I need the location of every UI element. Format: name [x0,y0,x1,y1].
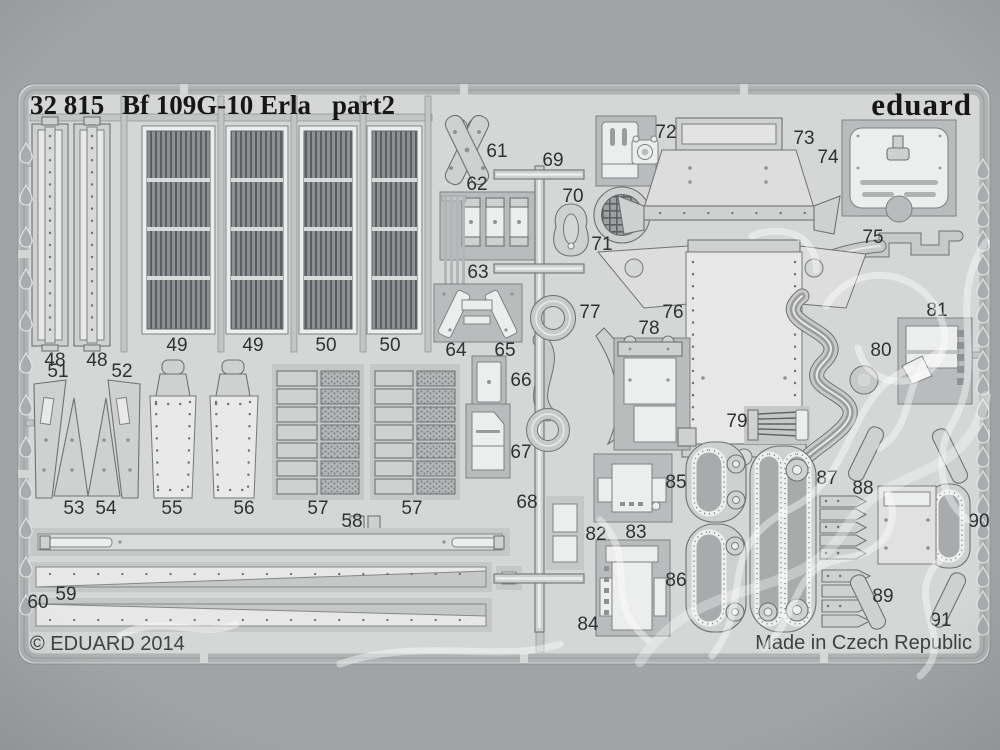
part-label-74: 74 [817,147,839,168]
part-label-49-b: 49 [242,335,263,356]
part-74-panel [842,120,956,222]
part-label-60: 60 [27,592,48,613]
part-83 [594,454,672,522]
part-64-65-brackets [434,284,522,342]
part-label-89: 89 [872,586,893,607]
part-58-60-strips [30,516,522,632]
part-85-oval [686,442,746,522]
part-label-66: 66 [510,370,531,391]
part-label-70: 70 [562,186,583,207]
part-label-50-b: 50 [379,335,400,356]
photoetch-fret-photo: 32 815 Bf 109G-10 Erla part2 eduard 48 4… [0,0,1000,750]
part-label-77: 77 [579,302,600,323]
part-79-harness [744,406,810,444]
part-62-latches [440,192,536,260]
part-label-53: 53 [63,498,84,519]
part-87-double-track [750,446,816,632]
part-66 [472,356,506,408]
part-label-86: 86 [665,570,686,591]
fret-scene: 32 815 Bf 109G-10 Erla part2 eduard 48 4… [0,0,1000,750]
brand-logo: eduard [871,87,972,122]
part-suffix: part2 [332,90,395,120]
part-label-58: 58 [341,511,362,532]
part-label-75: 75 [862,227,883,248]
part-label-55: 55 [161,498,182,519]
part-label-50-a: 50 [315,335,336,356]
part-label-54: 54 [95,498,117,519]
part-label-84: 84 [577,614,599,635]
part-label-56: 56 [233,498,254,519]
part-78-bracket [614,336,696,450]
part-label-57-b: 57 [401,498,422,519]
part-label-49-a: 49 [166,335,187,356]
part-label-73: 73 [793,128,814,149]
part-label-79: 79 [726,411,747,432]
part-label-63: 63 [467,262,488,283]
part-label-78: 78 [638,318,659,339]
catalog-number: 32 815 [30,90,104,120]
part-label-85: 85 [665,472,686,493]
part-70-ring [554,204,589,256]
part-label-52: 52 [111,361,132,382]
part-label-61: 61 [486,141,507,162]
part-49-50-grilles [142,126,422,334]
part-label-76: 76 [662,302,683,323]
copyright-text: © EDUARD 2014 [30,633,185,655]
part-label-69: 69 [542,150,563,171]
part-label-80: 80 [870,340,891,361]
part-82 [546,496,584,570]
part-label-72: 72 [655,122,676,143]
part-label-48-b: 48 [86,350,107,371]
part-label-62: 62 [466,174,487,195]
part-label-51: 51 [47,361,68,382]
product-title: Bf 109G-10 Erla [122,90,311,120]
part-label-67: 67 [510,442,531,463]
part-72 [596,116,658,186]
origin-text: Made in Czech Republic [755,632,972,654]
part-label-71: 71 [591,234,612,255]
part-label-64: 64 [445,340,467,361]
part-label-65: 65 [494,340,515,361]
part-label-59: 59 [55,584,76,605]
part-67 [466,404,510,478]
part-label-57-a: 57 [307,498,328,519]
part-label-83: 83 [625,522,646,543]
part-label-68: 68 [516,492,537,513]
part-label-90: 90 [968,511,989,532]
